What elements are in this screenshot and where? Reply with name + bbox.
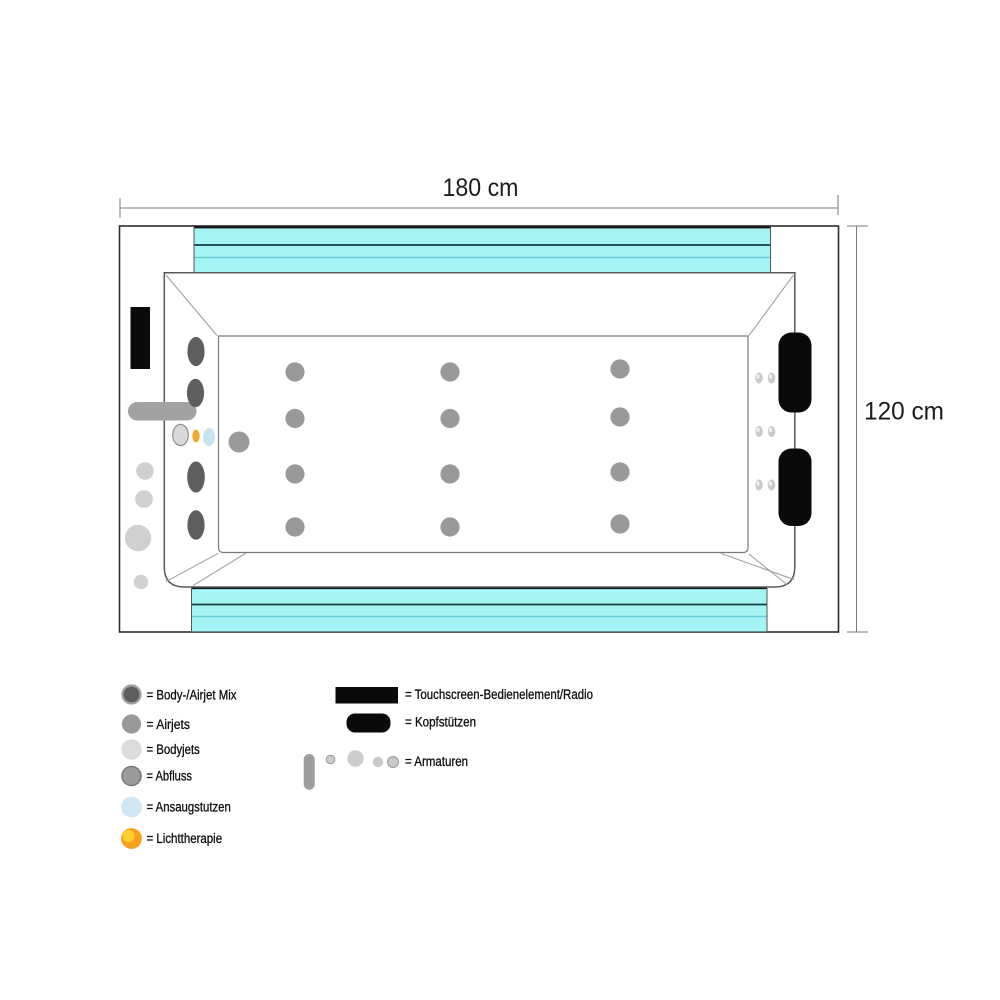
svg-text:180 cm: 180 cm <box>443 175 519 202</box>
svg-text:= Airjets: = Airjets <box>147 717 191 732</box>
svg-text:120 cm: 120 cm <box>864 399 944 426</box>
svg-text:= Body-/Airjet Mix: = Body-/Airjet Mix <box>147 687 237 702</box>
svg-text:= Lichttherapie: = Lichttherapie <box>147 831 223 846</box>
svg-text:= Ansaugstutzen: = Ansaugstutzen <box>147 800 231 815</box>
svg-text:= Abfluss: = Abfluss <box>147 769 193 784</box>
svg-text:= Kopfstützen: = Kopfstützen <box>405 715 476 730</box>
svg-text:= Touchscreen-Bedienelement/Ra: = Touchscreen-Bedienelement/Radio <box>405 687 593 702</box>
svg-text:= Bodyjets: = Bodyjets <box>147 742 201 757</box>
svg-text:= Armaturen: = Armaturen <box>405 754 468 769</box>
